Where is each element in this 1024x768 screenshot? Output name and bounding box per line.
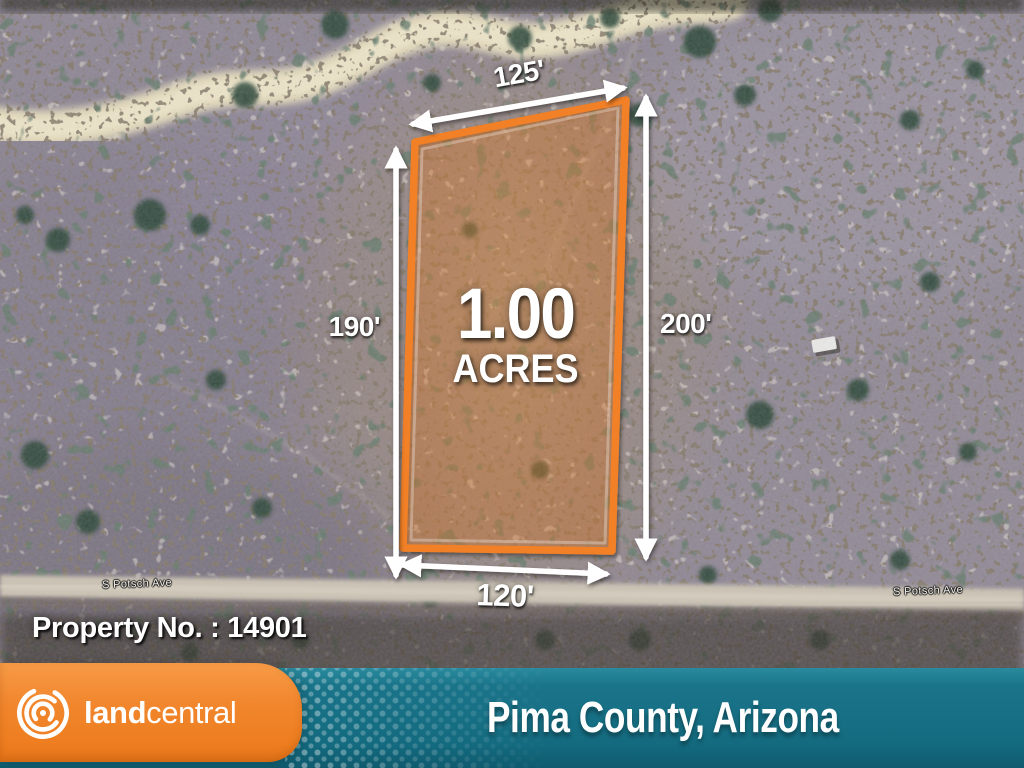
brand-name: landcentral — [84, 695, 236, 731]
road-label-right: S Potsch Ave — [893, 584, 963, 598]
brand-name-bold: land — [84, 695, 146, 730]
acreage-value: 1.00 — [423, 281, 608, 348]
acreage-callout: 1.00 ACRES — [423, 281, 608, 388]
brand-name-regular: central — [146, 695, 236, 730]
landcentral-logo-icon — [16, 686, 70, 740]
property-number: Property No. : 14901 — [32, 612, 306, 645]
brand-block: landcentral — [0, 663, 302, 762]
dimension-label-bottom: 120' — [451, 576, 558, 616]
listing-image: 125' 190' 200' 120' 1.00 ACRES Property … — [0, 0, 1024, 768]
dimension-arrow-bottom — [403, 565, 606, 574]
dimension-label-right: 200' — [660, 308, 711, 340]
road-label-left: S Potsch Ave — [102, 577, 172, 591]
acreage-unit: ACRES — [423, 350, 608, 388]
location-title: Pima County, Arizona — [487, 693, 839, 743]
dimension-label-left: 190' — [308, 311, 380, 343]
